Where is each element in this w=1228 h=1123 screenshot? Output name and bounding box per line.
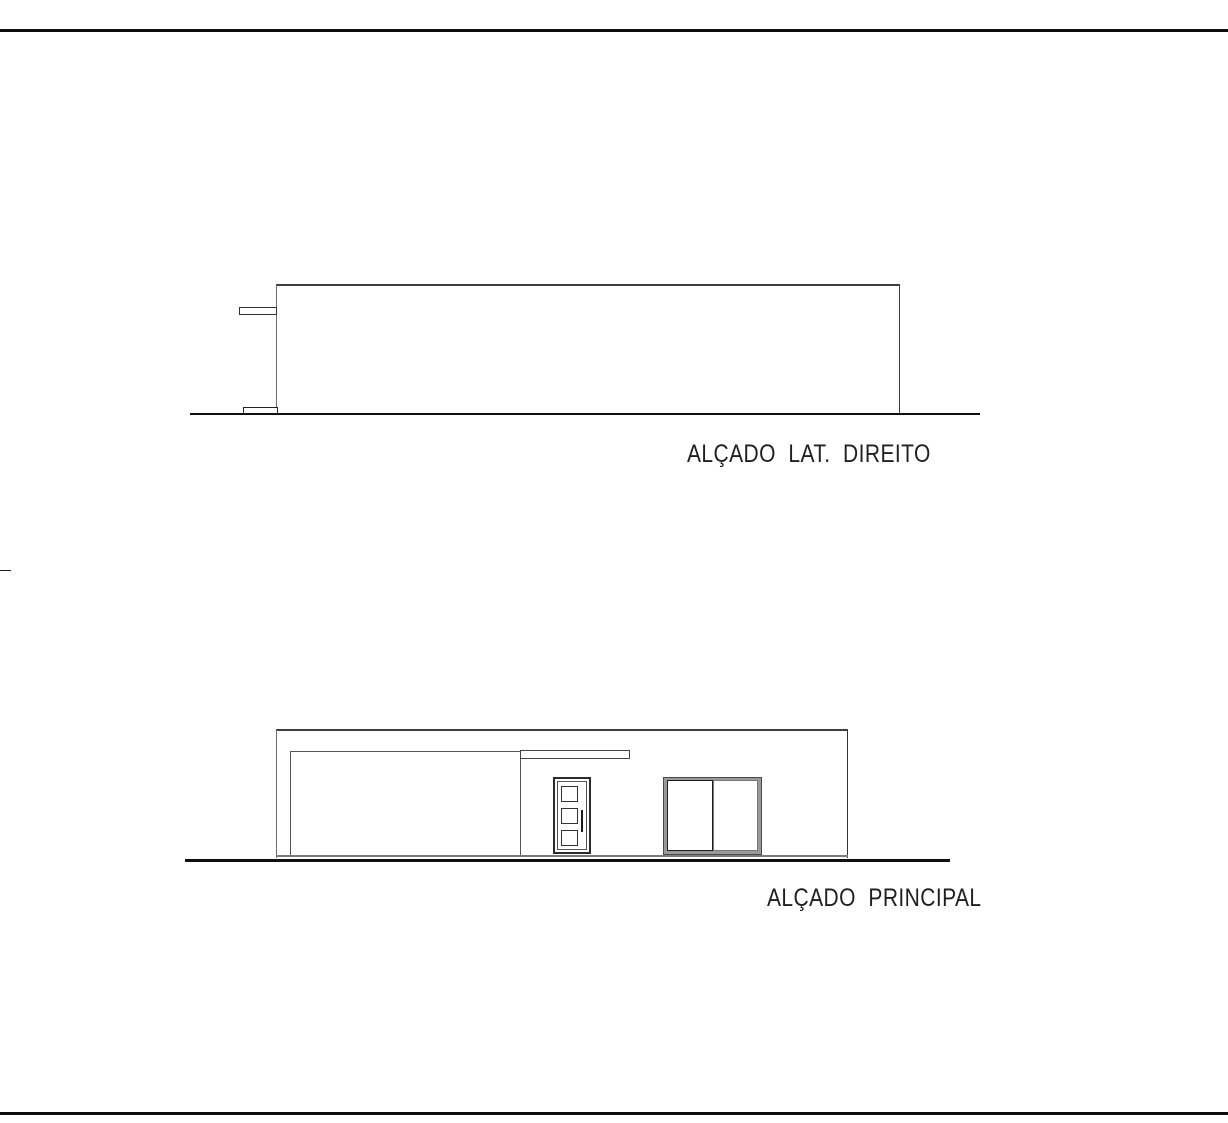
front-window-pane-right [713,780,759,851]
front-elevation-porch-recess [290,751,521,857]
side-elevation-label: ALÇADO LAT. DIREITO [687,442,931,467]
side-elevation-ground-line [190,413,980,416]
front-elevation-canopy-slab [520,750,630,759]
sheet-top-border-line [0,29,1228,32]
drawing-sheet: ALÇADO LAT. DIREITO ALÇADO PRINCIPAL [0,0,1228,1123]
sheet-bottom-border-line [0,1112,1228,1115]
front-elevation-label: ALÇADO PRINCIPAL [767,886,981,911]
front-door-glazing-top [561,786,578,802]
front-door-handle [581,810,583,832]
side-elevation-building-outline [276,284,900,415]
sheet-left-margin-tick [0,570,11,572]
front-elevation-ground-line [185,859,950,862]
side-elevation-gutter-profile [239,307,277,315]
front-window-pane-left [667,780,713,851]
front-door-glazing-bottom [561,830,578,846]
front-elevation-wall-base-line [276,855,848,857]
front-door-glazing-middle [561,808,578,824]
